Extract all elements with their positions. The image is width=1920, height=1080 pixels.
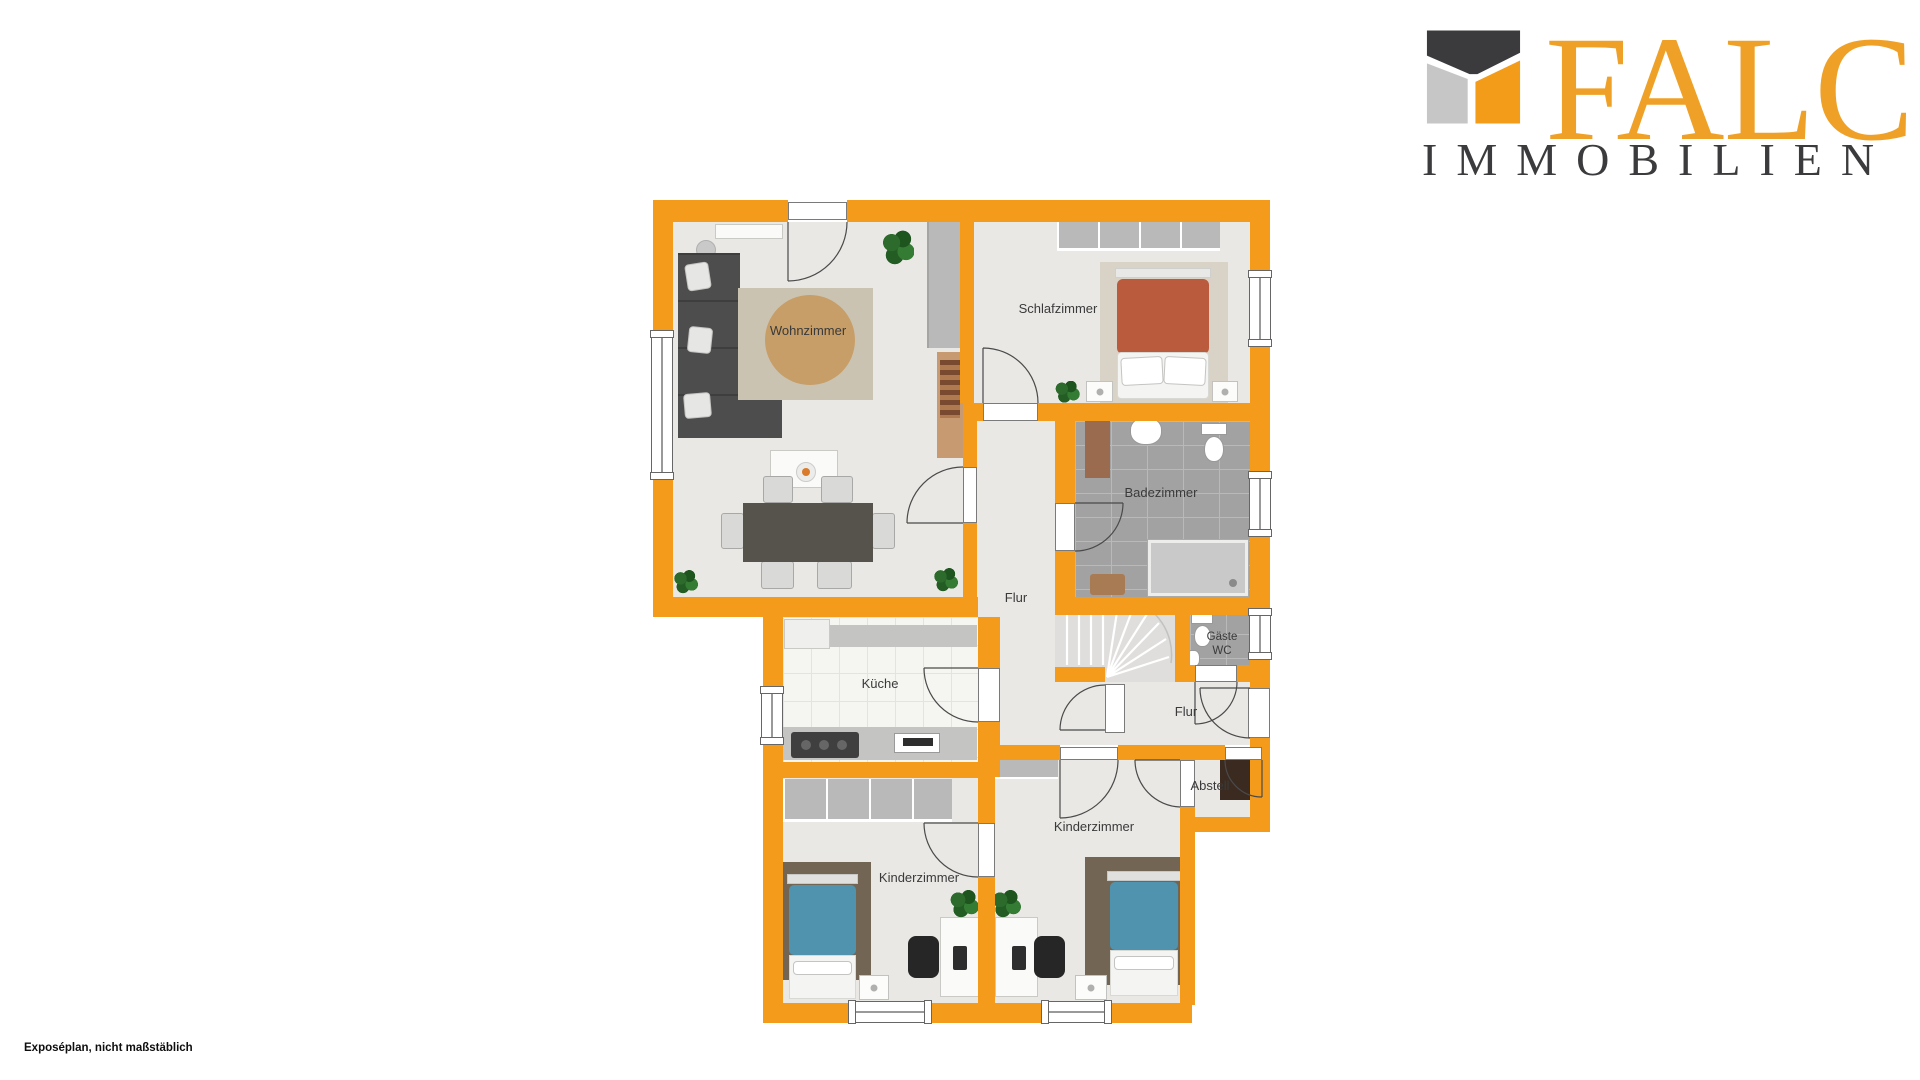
falc-logo-mark-icon (1425, 28, 1522, 126)
room-label-kinderzimmer-rechts: Kinderzimmer (1054, 819, 1134, 835)
plan-disclaimer: Exposéplan, nicht maßstäblich (24, 1042, 193, 1054)
door-arc (924, 823, 978, 877)
door-arc (907, 467, 963, 523)
room-label-kinderzimmer-links: Kinderzimmer (879, 870, 959, 886)
room-label-schlafzimmer: Schlafzimmer (1019, 301, 1098, 317)
falc-logo: FALC IMMOBILIEN (1422, 24, 1912, 184)
room-label-flur-2: Flur (1175, 704, 1197, 720)
door-arc (1225, 760, 1262, 797)
door-arc (788, 222, 847, 281)
door-arc (983, 348, 1038, 403)
floor-plan: Wohnzimmer Schlafzimmer Badezimmer Flur … (650, 195, 1272, 1030)
room-label-flur: Flur (1005, 590, 1027, 606)
door-arc (924, 668, 978, 722)
exposé-page: Wohnzimmer Schlafzimmer Badezimmer Flur … (0, 0, 1920, 1080)
room-label-wohnzimmer: Wohnzimmer (770, 323, 846, 339)
logo-subtitle: IMMOBILIEN (1422, 137, 1893, 183)
door-arc (1060, 760, 1118, 818)
room-label-gaeste-wc: Gäste WC (1198, 631, 1246, 659)
door-arc (1075, 503, 1123, 551)
door-swing-overlay (650, 195, 1272, 1030)
door-arc (1060, 685, 1105, 730)
room-label-kueche: Küche (862, 676, 899, 692)
door-arc (1200, 688, 1250, 738)
room-label-badezimmer: Badezimmer (1125, 485, 1198, 501)
door-arc (1135, 760, 1180, 807)
room-label-abstell: Abstell (1190, 778, 1229, 794)
